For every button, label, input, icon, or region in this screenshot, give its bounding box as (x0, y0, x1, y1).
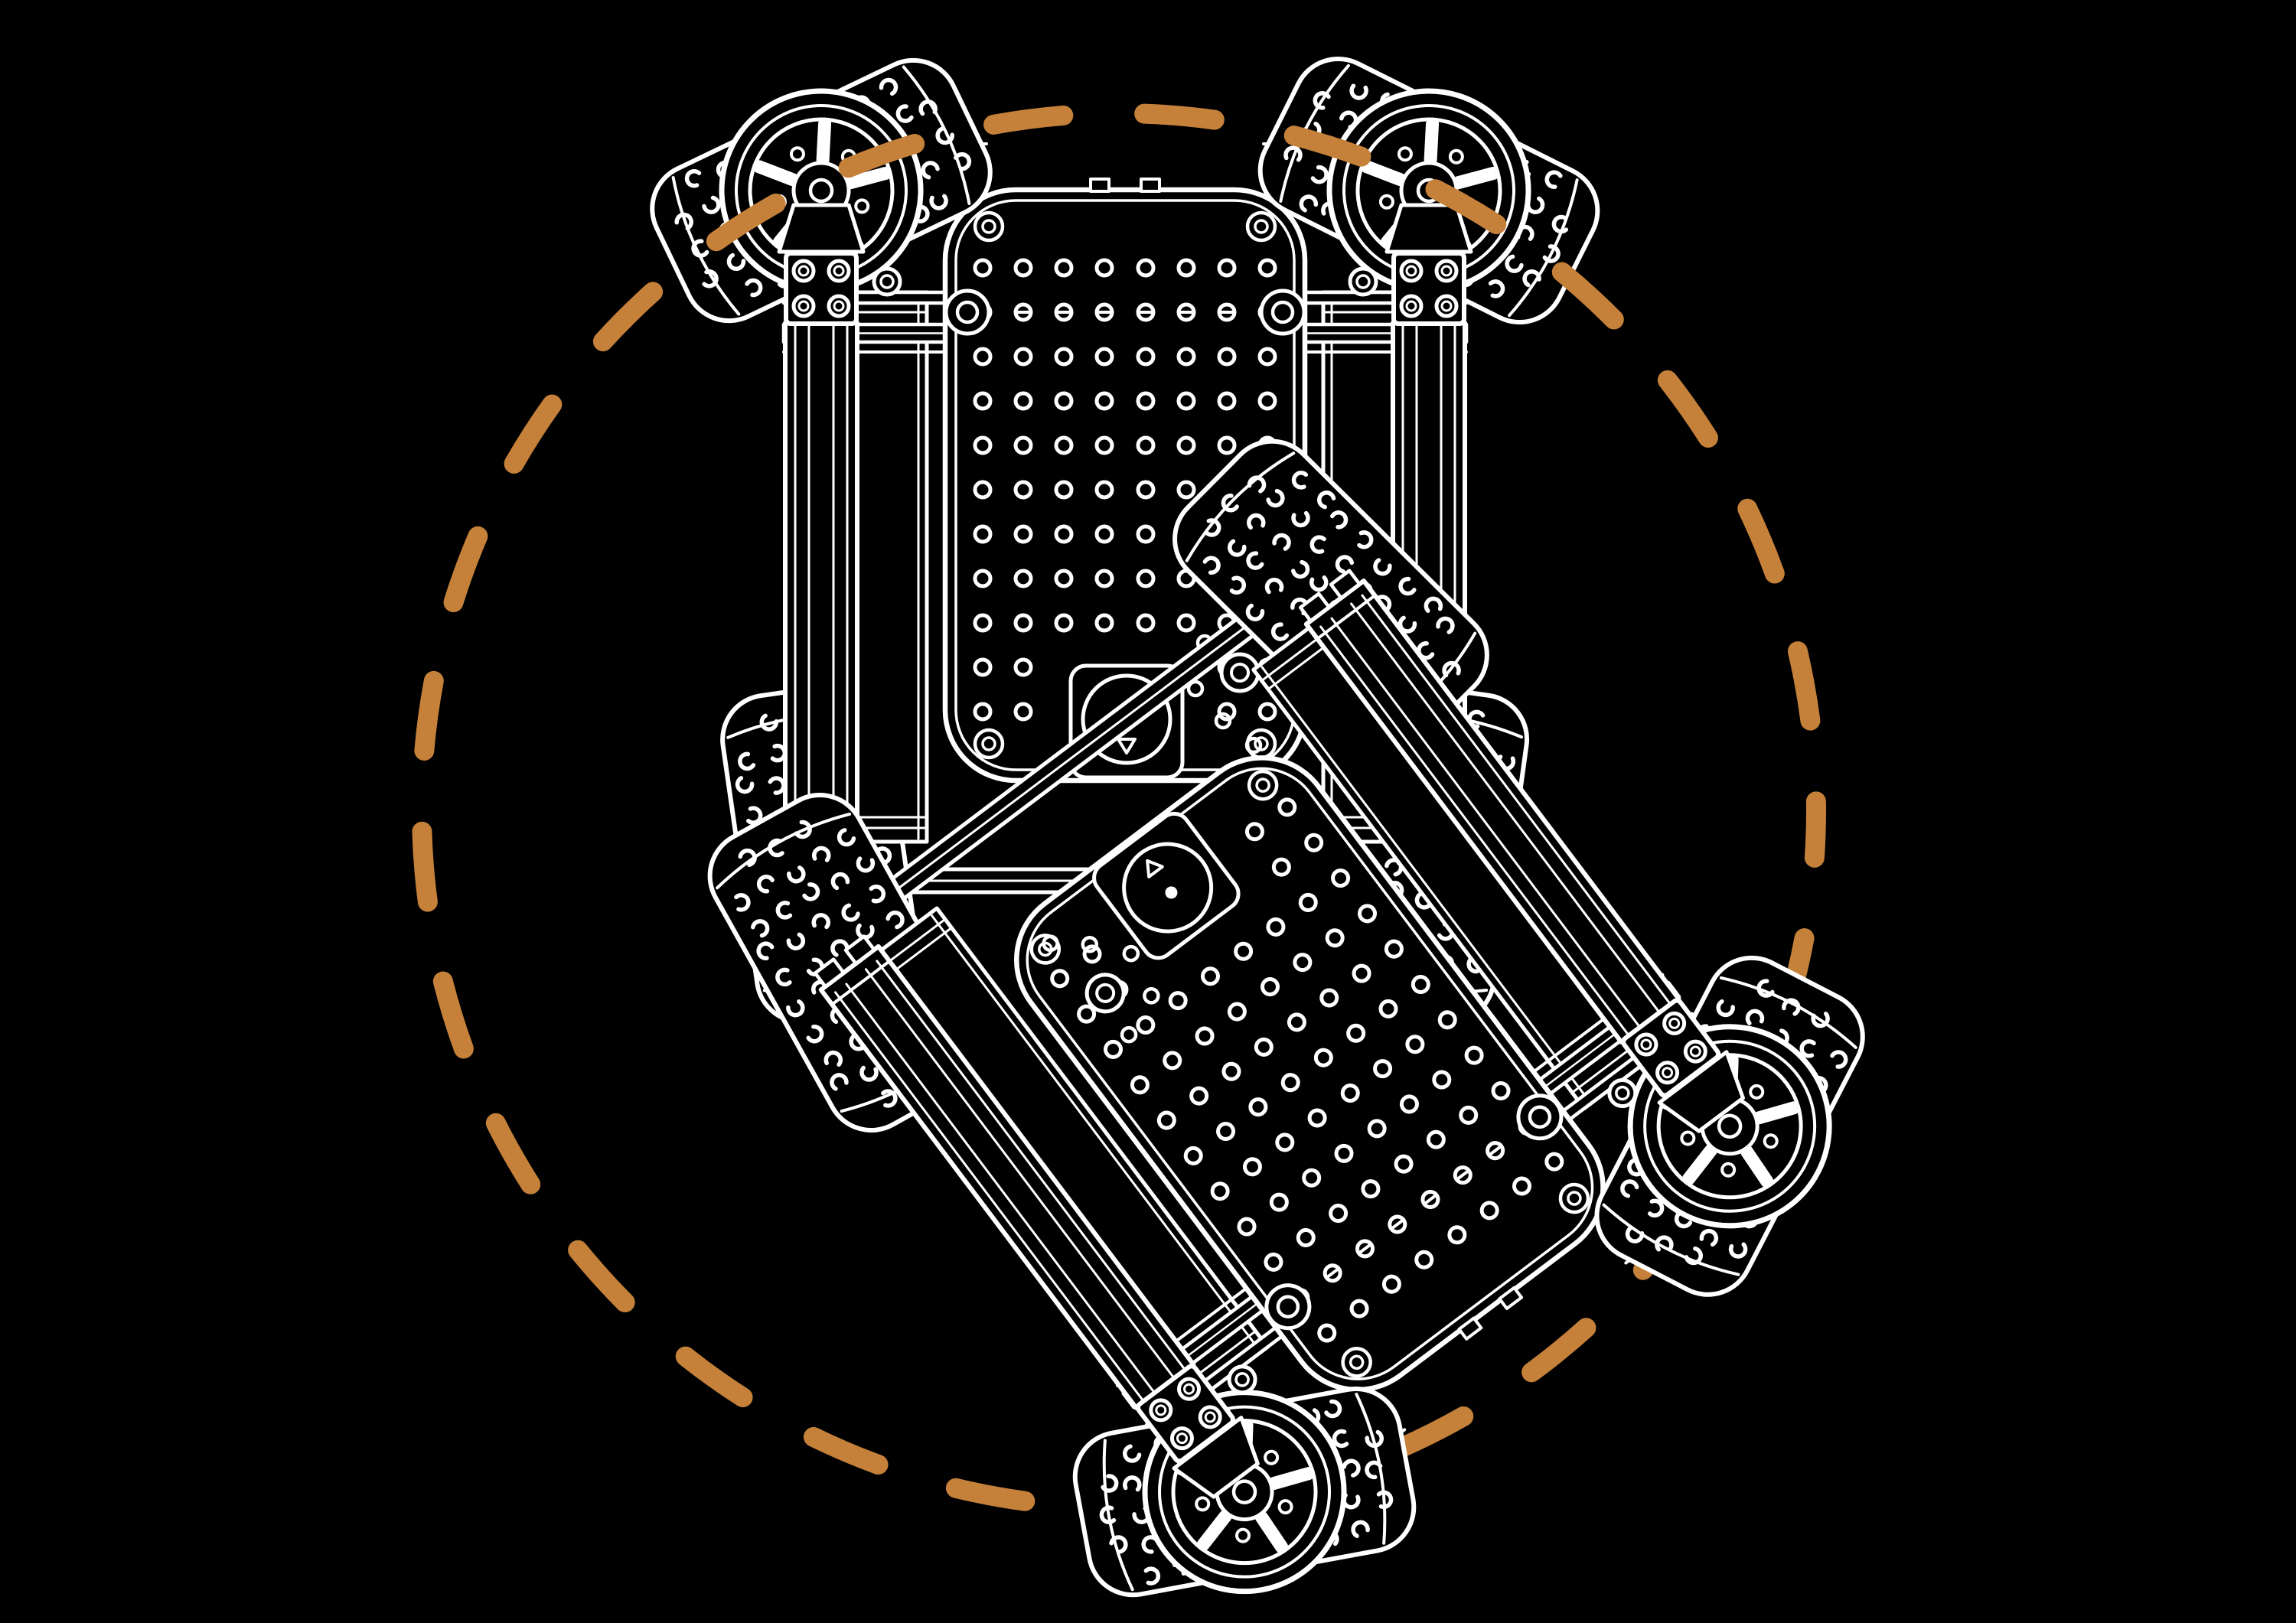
frame-rail (785, 301, 857, 863)
rover-rotation-illustration (0, 0, 2296, 1623)
illustration-stage (0, 0, 2296, 1623)
